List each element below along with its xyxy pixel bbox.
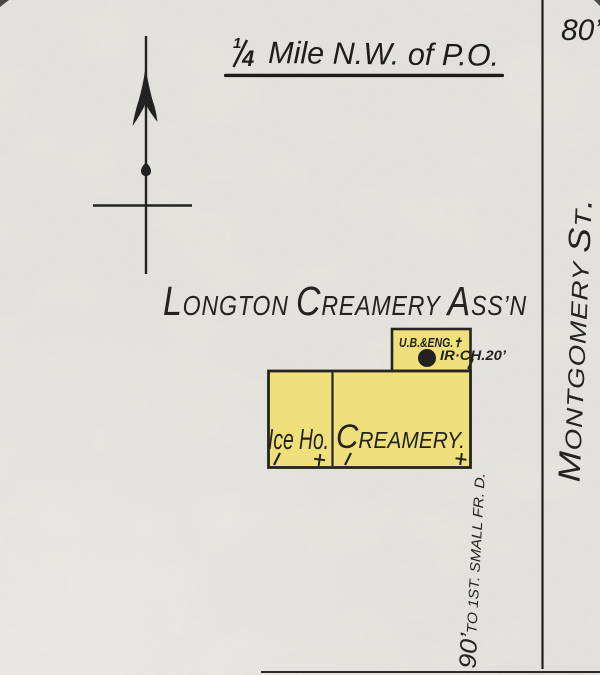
svg-text:80’: 80’ (561, 14, 600, 47)
svg-text:Mile N.W. of P.O.: Mile N.W. of P.O. (268, 35, 499, 73)
svg-text:1: 1 (233, 35, 241, 52)
svg-text:Ice Ho.: Ice Ho. (268, 424, 329, 456)
svg-text:4: 4 (241, 46, 254, 71)
